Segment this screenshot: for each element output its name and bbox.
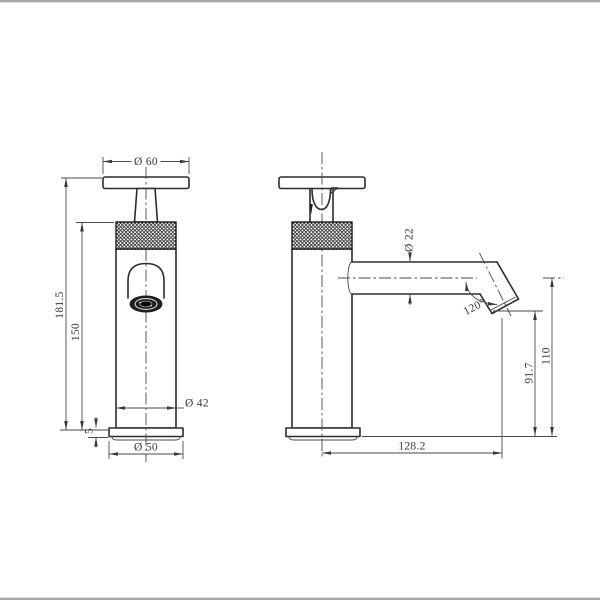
dim-base-height: 5 xyxy=(84,417,109,448)
spout-tube-fill xyxy=(348,262,518,314)
dim-outlet-height: 91.7 xyxy=(493,311,543,436)
dim-spout-centerline-height: 110 xyxy=(541,278,553,436)
technical-drawing-page: Ø 60 181.5 150 5 Ø 42 xyxy=(0,0,600,600)
dim-label-base-height: 5 xyxy=(84,428,96,434)
dim-label-handle-diameter: Ø 60 xyxy=(134,156,158,168)
handle-stem-side xyxy=(310,188,338,222)
technical-drawing: Ø 60 181.5 150 5 Ø 42 xyxy=(0,0,600,600)
dim-overall-height: 181.5 xyxy=(54,178,102,430)
base-lip-side xyxy=(289,437,357,440)
dim-body-height: 150 xyxy=(70,223,114,431)
side-view: Ø 22 120° 91.7 110 128.2 xyxy=(279,152,564,459)
aerator-outlet xyxy=(130,296,162,312)
dim-label-spout-reach: 128.2 xyxy=(398,441,425,453)
dim-label-spout-tube-diameter: Ø 22 xyxy=(404,228,416,252)
knurl-band-front xyxy=(116,222,176,249)
front-view: Ø 60 181.5 150 5 Ø 42 xyxy=(54,156,209,462)
base-flange-side xyxy=(286,428,360,437)
dim-label-base-diameter: Ø 50 xyxy=(134,442,158,454)
dim-label-body-diameter: Ø 42 xyxy=(185,398,209,410)
dim-label-spout-centerline-height: 110 xyxy=(541,347,553,365)
dim-label-overall-height: 181.5 xyxy=(54,291,66,318)
dim-label-outlet-height: 91.7 xyxy=(524,362,536,383)
knurl-band-side xyxy=(292,222,352,249)
dim-label-body-height: 150 xyxy=(70,323,82,341)
